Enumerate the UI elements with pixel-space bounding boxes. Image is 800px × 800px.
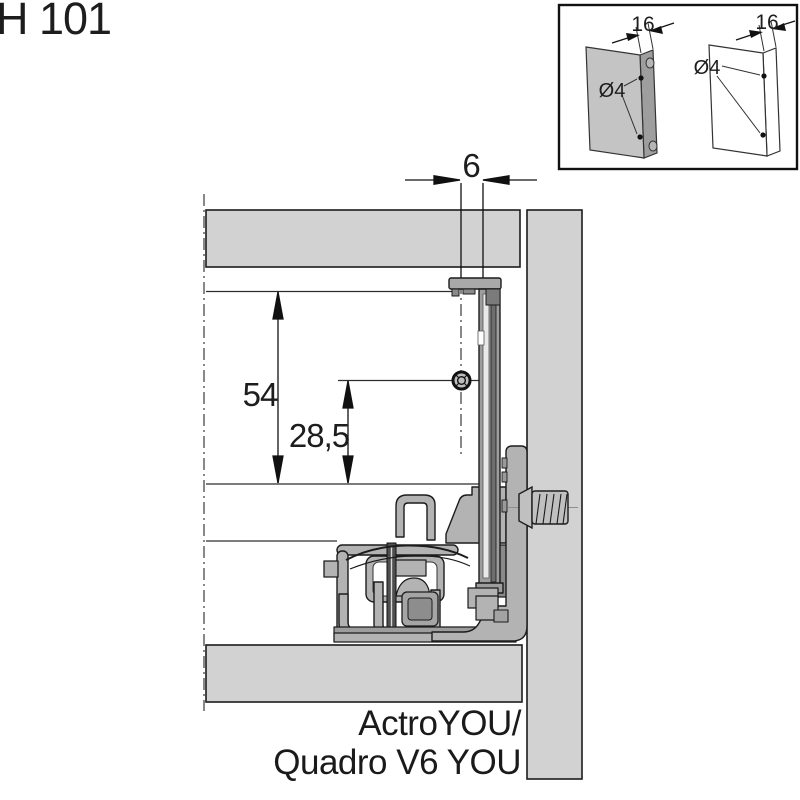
hole-diameter-label: Ø4 (694, 57, 721, 79)
rail-top-cap (449, 278, 501, 289)
panel-front-face (586, 47, 644, 158)
dim-54-label: 54 (243, 376, 278, 413)
left-tab (324, 561, 338, 577)
product-label: ActroYOU/ Quadro V6 YOU (0, 704, 521, 782)
bottom-panel-section (206, 645, 522, 702)
inset-box: 16 Ø4 16 Ø4 (559, 5, 797, 169)
dim-28-5-label: 28,5 (289, 417, 349, 454)
hole-diameter-label: Ø4 (599, 80, 626, 102)
page-title: H 101 (0, 0, 111, 45)
drill-hole-dot (638, 75, 643, 80)
rear-vertical-rail (476, 289, 503, 593)
screw-thread (532, 491, 568, 524)
product-label-line1: ActroYOU/ (0, 704, 521, 743)
technical-drawing: 6 54 28,5 (0, 0, 800, 800)
thickness-label: 16 (755, 11, 778, 34)
drill-hole-dot (761, 73, 766, 78)
hook-clip (396, 495, 435, 540)
drill-hole-dot (637, 134, 642, 139)
arrow-down-icon (273, 456, 283, 483)
catalog-page: 6 54 28,5 (0, 0, 800, 800)
arrow-left-icon (483, 176, 509, 184)
arrow-up-icon (273, 292, 283, 319)
arrow-down-icon (343, 456, 353, 483)
drill-hole-dot (760, 132, 765, 137)
screw-head (519, 487, 532, 528)
thickness-label: 16 (631, 13, 654, 36)
product-label-line2: Quadro V6 YOU (0, 743, 521, 782)
drawer-slide-mechanism (324, 278, 527, 642)
dim-6-label: 6 (462, 147, 479, 184)
top-panel-section (206, 210, 520, 267)
hole-marker (453, 372, 470, 389)
arrow-up-icon (343, 381, 353, 408)
arrow-right-icon (434, 176, 460, 184)
